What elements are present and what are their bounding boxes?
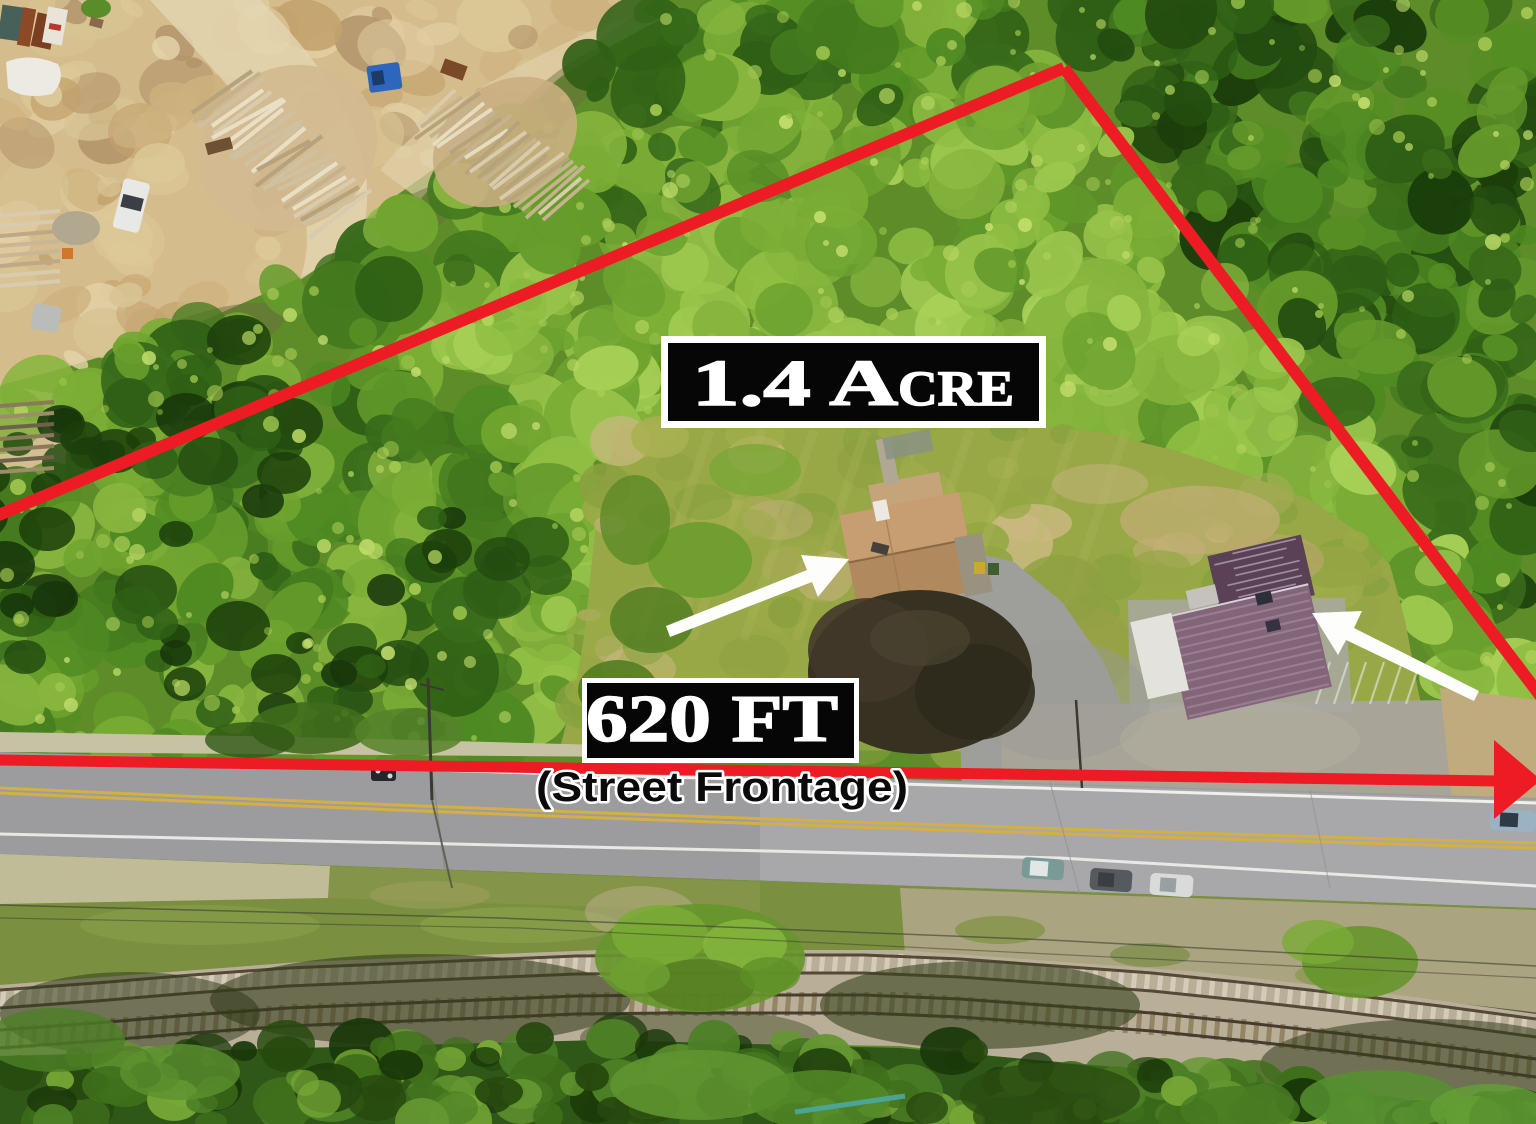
svg-text:CRE: CRE (898, 360, 1014, 416)
svg-text:(Street Frontage): (Street Frontage) (536, 763, 908, 810)
svg-text:1.4 A: 1.4 A (692, 347, 898, 420)
svg-text:620 FT: 620 FT (586, 682, 838, 756)
